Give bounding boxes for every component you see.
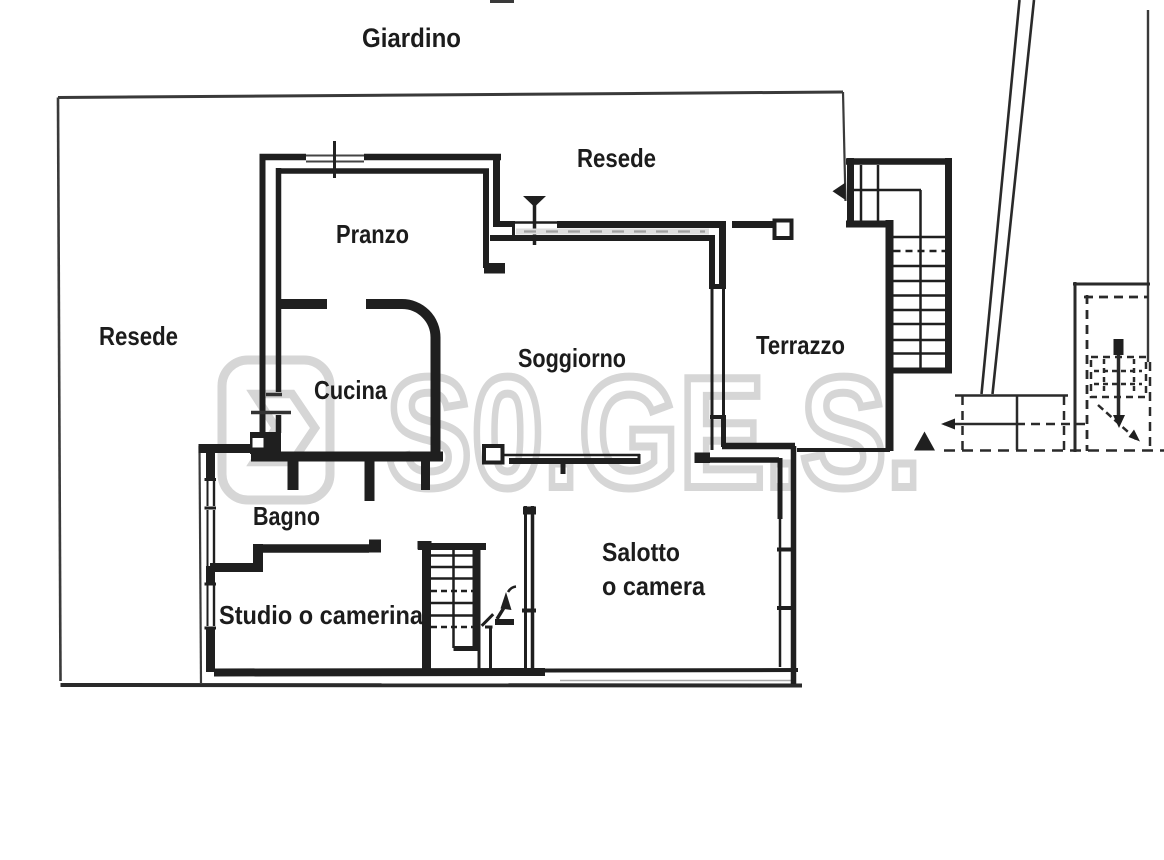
svg-text:Resede: Resede bbox=[577, 143, 656, 173]
svg-text:Salotto: Salotto bbox=[602, 537, 680, 567]
svg-text:o camera: o camera bbox=[602, 571, 705, 601]
svg-text:Cucina: Cucina bbox=[314, 375, 387, 405]
svg-text:Pranzo: Pranzo bbox=[336, 219, 409, 249]
svg-text:Soggiorno: Soggiorno bbox=[518, 343, 626, 373]
svg-text:S0.GE.S.: S0.GE.S. bbox=[386, 345, 922, 521]
svg-text:Terrazzo: Terrazzo bbox=[756, 330, 845, 360]
svg-text:Resede: Resede bbox=[99, 321, 178, 351]
svg-text:Studio o camerina: Studio o camerina bbox=[219, 600, 423, 630]
svg-text:Bagno: Bagno bbox=[253, 501, 320, 531]
svg-text:Giardino: Giardino bbox=[362, 23, 461, 53]
